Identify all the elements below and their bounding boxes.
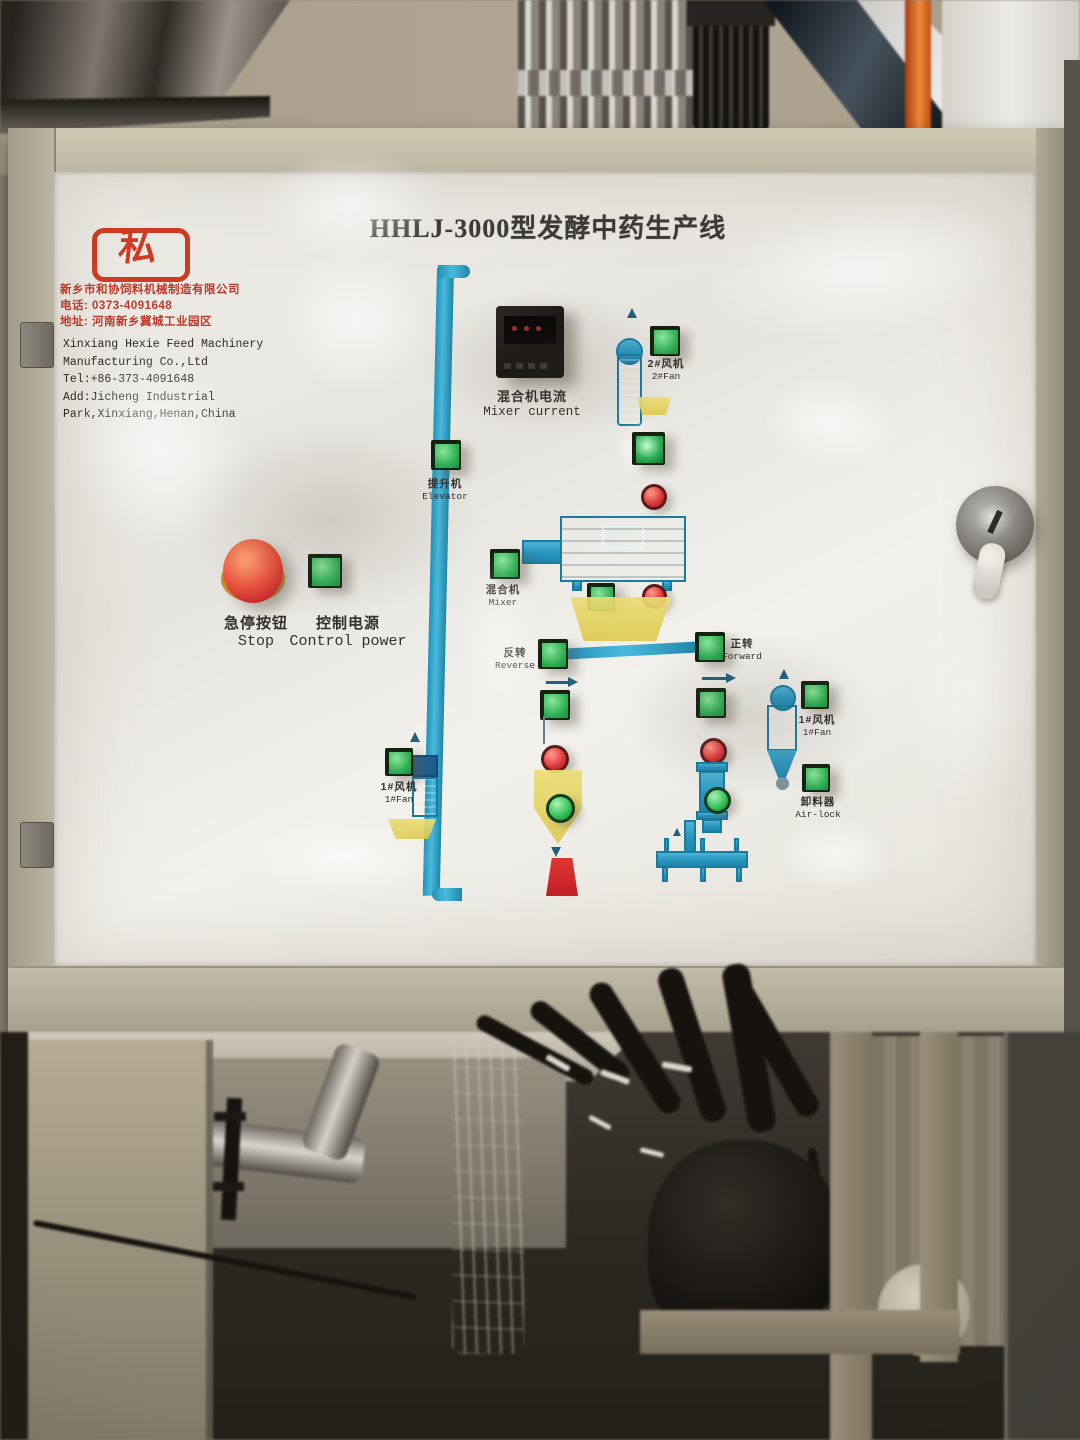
mixer-current-meter [496,306,564,378]
indicator-red [541,745,569,773]
fan2-button[interactable] [650,326,680,356]
mixer-button[interactable] [490,549,520,579]
wire-cage [452,1044,524,1354]
cabinet-top-rail [8,128,1064,174]
elevator-label: 提升机 Elevator [410,476,480,502]
cable-tie [640,1147,664,1158]
frame-post [830,1032,872,1440]
company-en-line: Add:Jicheng Industrial [63,389,313,407]
indicator-green [704,787,731,814]
company-en-line: Xinxiang Hexie Feed Machinery [63,336,313,354]
flow-arrow-right-icon [546,681,570,684]
cable-tie [588,1115,612,1131]
elevator-button[interactable] [431,440,461,470]
meter-screen [504,316,556,344]
brand-logo-glyph: 私 [85,216,191,271]
company-en-line: Park,Xinxiang,Henan,China [63,406,313,424]
door-hinge-bottom [20,822,54,868]
pipe-clamp-bolt [214,1112,246,1121]
company-cn-line: 新乡市和协饲料机械制造有限公司 [60,282,300,298]
flow-arrow-up-icon [779,669,789,679]
flow-arrow-up-icon [673,828,681,836]
flow-arrow-right-icon [568,677,578,687]
mixer-motor-graphic [522,540,562,564]
indicator-red [641,484,667,510]
fan2-label: 2#风机 2#Fan [644,356,688,382]
company-cn-line: 地址: 河南新乡冀城工业园区 [60,314,300,330]
airlock-button[interactable] [802,764,830,792]
reverse-button[interactable] [538,639,568,669]
elevator-line-bottom-boot [432,888,462,901]
fan1-left-label: 1#风机 1#Fan [376,779,422,805]
mixer-current-label: 混合机电流 Mixer current [462,386,602,419]
motor-cap [687,0,775,26]
indicator-red [700,738,727,765]
emergency-stop-button[interactable] [223,539,283,603]
fan1-right-label: 1#风机 1#Fan [794,712,840,738]
flow-arrow-down-icon [551,847,561,857]
company-info-en: Xinxiang Hexie Feed Machinery Manufactur… [63,336,313,424]
fan2-hopper [637,397,671,415]
company-cn-line: 电话: 0373-4091648 [60,298,300,314]
shadow-edge [0,1032,28,1440]
flow-arrow-up-icon [627,308,637,318]
reverse-label: 反转 Reverse [490,645,540,671]
mixer-start-lamp-button[interactable] [632,432,665,465]
airlock-label: 卸料器 Air-lock [790,794,846,820]
elevator-line-top-spout [438,265,470,278]
mixer-leg [572,580,582,591]
frame-beam [640,1310,960,1354]
panel-title: HHLJ-3000型发酵中药生产线 [318,208,778,245]
indicator-green [546,794,575,823]
company-info-cn: 新乡市和协饲料机械制造有限公司 电话: 0373-4091648 地址: 河南新… [60,282,300,330]
ribbed-pipes [518,0,696,140]
brand-logo: 私 [88,216,188,278]
door-hinge-top [20,322,54,368]
pipe-clamp-bolt [212,1182,244,1191]
cabinet-side-shadow [1064,60,1080,1040]
under-cabinet-scene [0,1032,1080,1440]
connector-line [543,716,545,744]
forward-label: 正转 Forward [714,636,770,662]
control-power-label: 控制电源 Control power [278,612,418,650]
fan1-right-button[interactable] [801,681,829,709]
photo-of-control-cabinet: HHLJ-3000型发酵中药生产线 私 新乡市和协饲料机械制造有限公司 电话: … [0,0,1080,1440]
company-en-line: Manufacturing Co.,Ltd [63,354,313,372]
right-column [1004,1032,1080,1440]
cabinet-left-rail [8,128,56,1038]
flow-arrow-right-icon [726,673,736,683]
flow-arrow-right-icon [702,677,728,680]
mixer-label: 混合机 Mixer [478,582,528,608]
forward-aux-button[interactable] [696,688,726,718]
cabinet-right-rail [1036,128,1064,1038]
fan1-left-hopper [388,819,436,839]
control-power-button[interactable] [308,554,342,588]
orange-column [905,0,931,148]
mixer-hatch [602,525,644,549]
mixer-graphic [560,516,686,582]
company-en-line: Tel:+86-373-4091648 [63,371,313,389]
flow-arrow-up-icon [410,732,420,742]
fan1-left-button[interactable] [385,748,413,776]
